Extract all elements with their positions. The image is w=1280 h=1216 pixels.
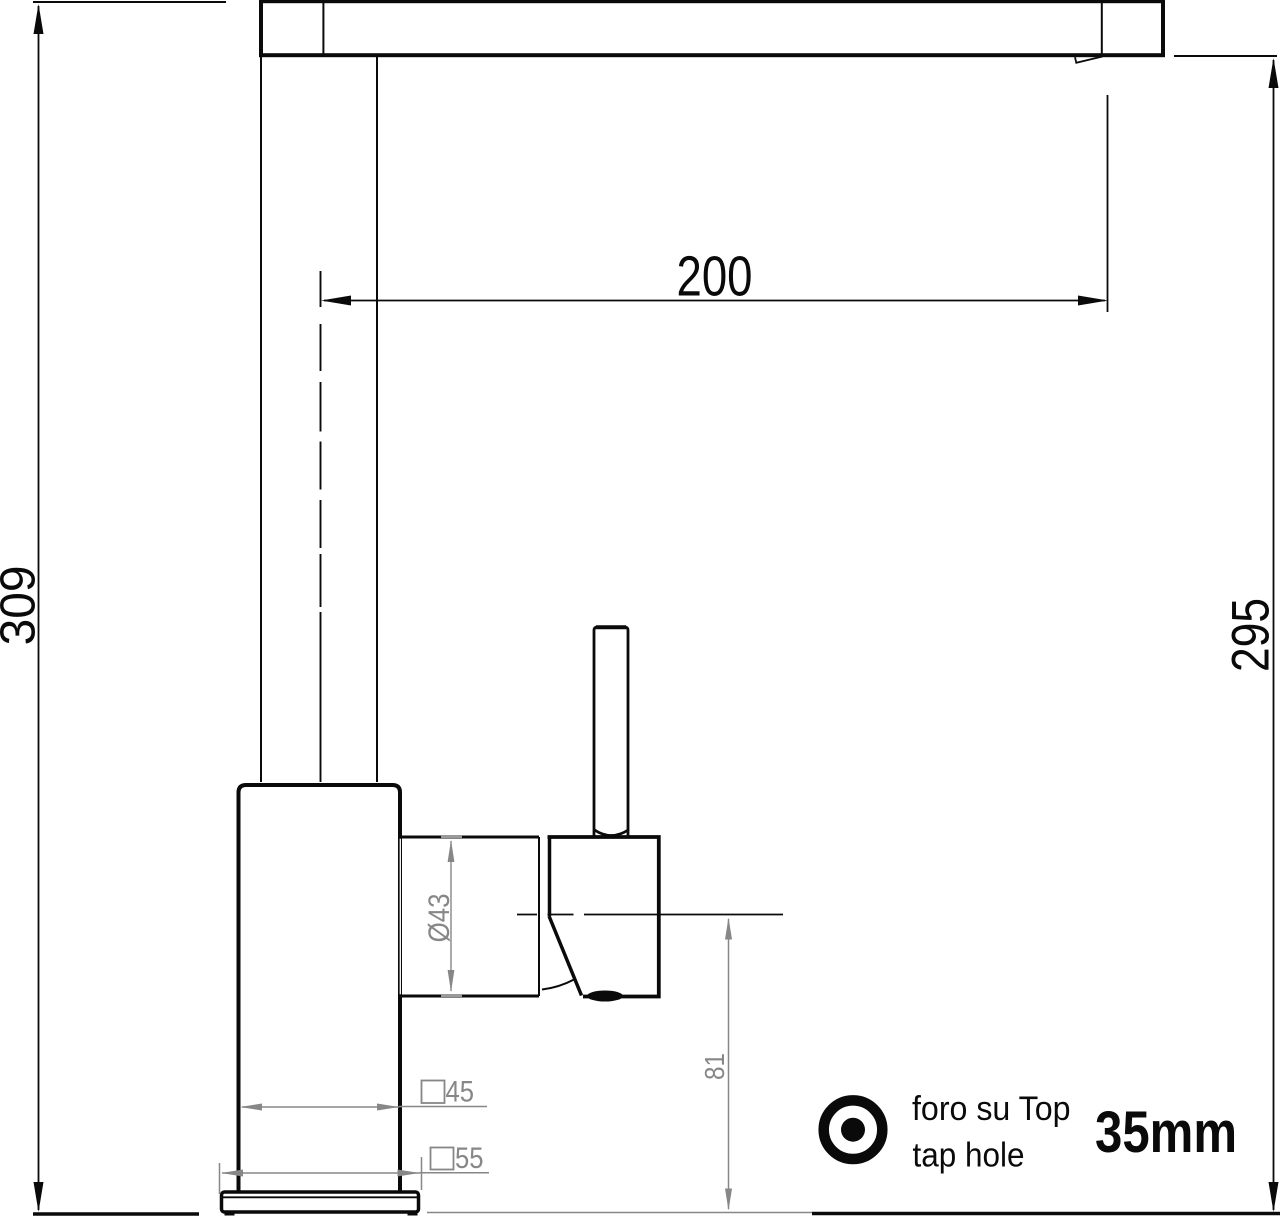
svg-text:tap hole: tap hole (913, 1137, 1025, 1175)
svg-text:Ø43: Ø43 (423, 893, 456, 942)
svg-text:200: 200 (677, 245, 753, 309)
svg-text:309: 309 (0, 565, 45, 645)
svg-text:55: 55 (455, 1142, 484, 1175)
svg-text:35mm: 35mm (1095, 1100, 1237, 1165)
svg-text:foro su Top: foro su Top (912, 1090, 1071, 1128)
svg-text:81: 81 (699, 1053, 730, 1080)
svg-text:295: 295 (1221, 598, 1280, 672)
svg-text:45: 45 (446, 1076, 475, 1109)
